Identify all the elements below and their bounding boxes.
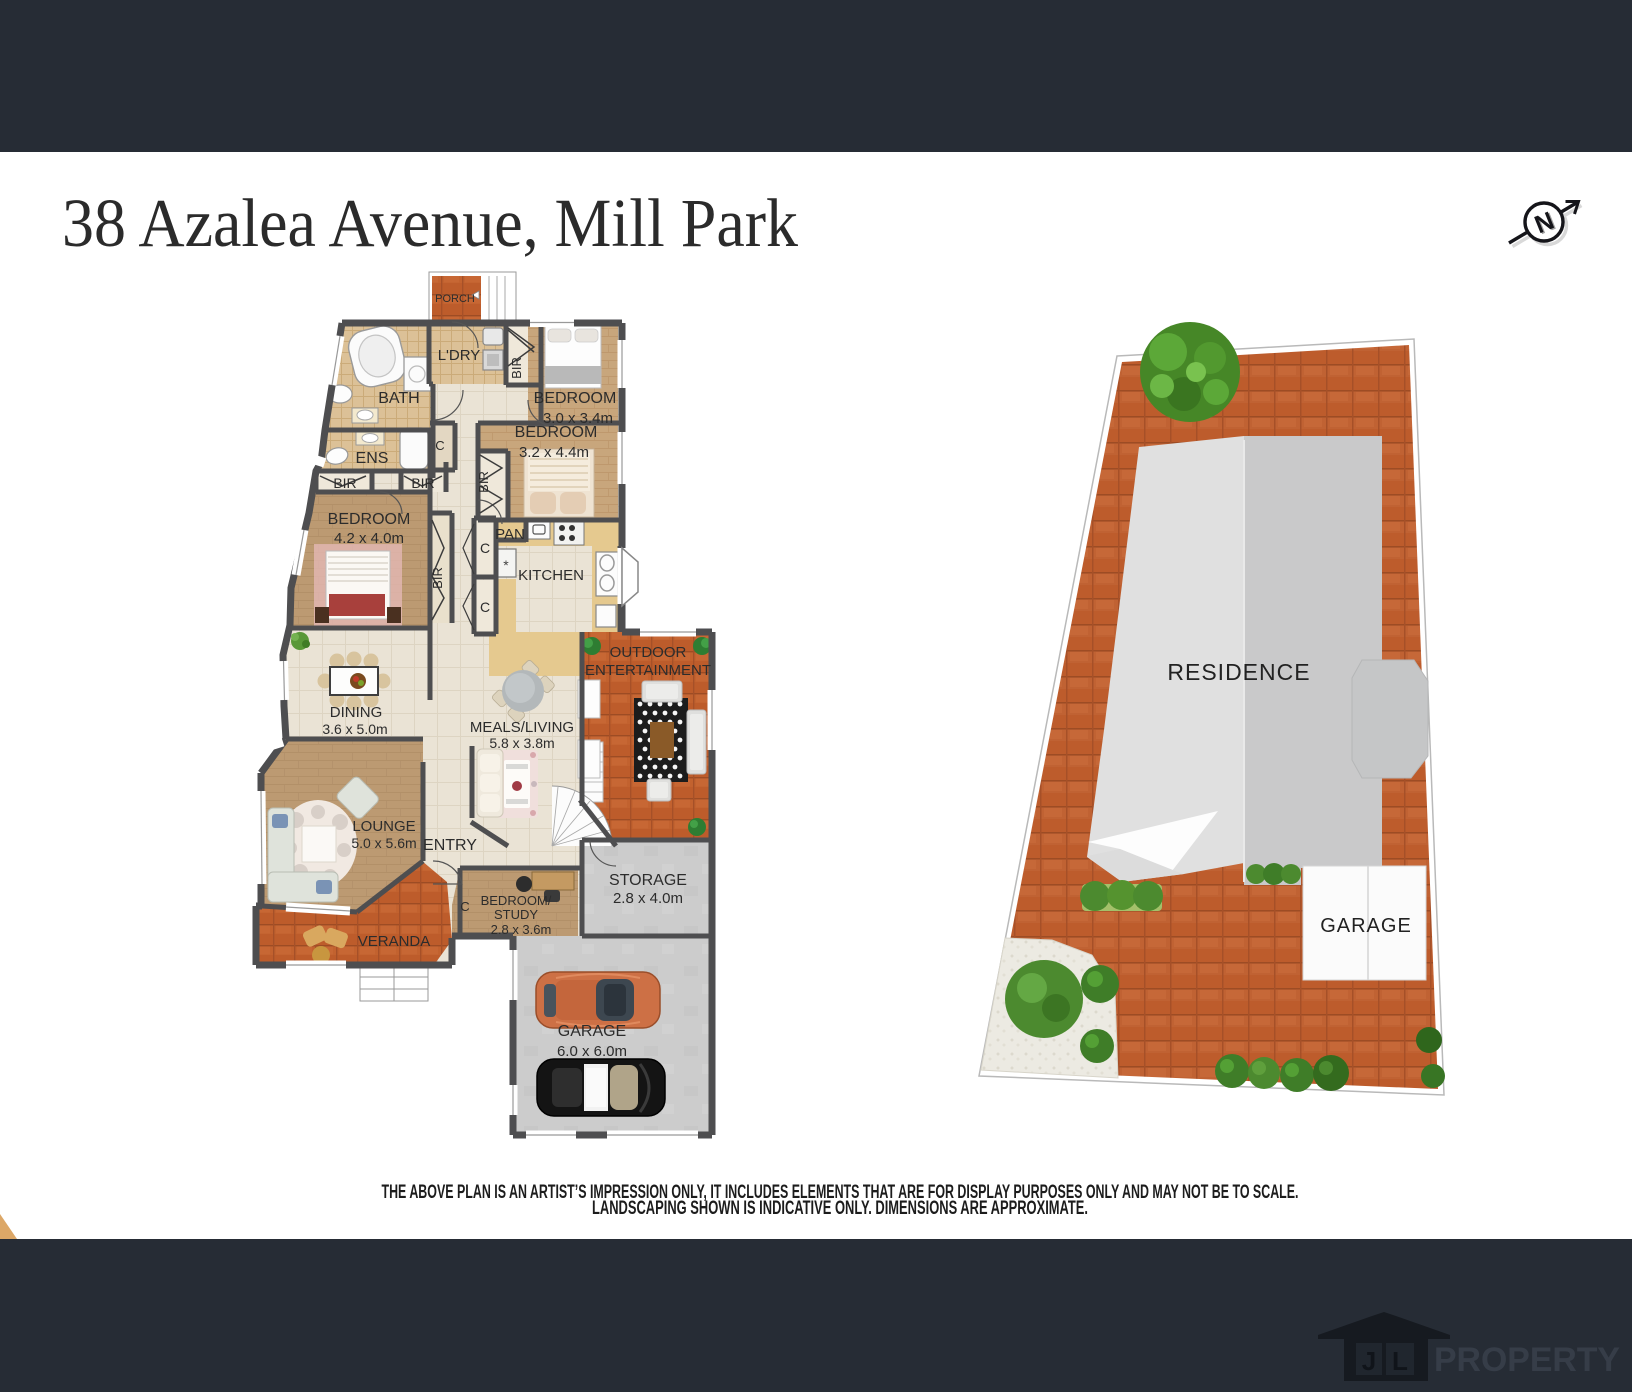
svg-text:DINING: DINING bbox=[330, 704, 383, 721]
svg-text:*: * bbox=[503, 557, 509, 573]
svg-text:2.8 x 3.6m: 2.8 x 3.6m bbox=[491, 922, 552, 937]
svg-text:PROPERTY: PROPERTY bbox=[1434, 1341, 1620, 1379]
svg-text:LOUNGE: LOUNGE bbox=[352, 818, 415, 835]
svg-text:ENTRY: ENTRY bbox=[423, 837, 477, 854]
svg-text:38 Azalea Avenue, Mill Park: 38 Azalea Avenue, Mill Park bbox=[62, 185, 798, 261]
svg-text:MEALS/LIVING: MEALS/LIVING bbox=[470, 719, 574, 736]
svg-text:BIR: BIR bbox=[476, 471, 491, 493]
svg-text:2.8 x 4.0m: 2.8 x 4.0m bbox=[613, 890, 683, 907]
svg-text:BEDROOM: BEDROOM bbox=[534, 390, 617, 407]
svg-text:3.2 x 4.4m: 3.2 x 4.4m bbox=[519, 444, 589, 461]
svg-text:3.6 x 5.0m: 3.6 x 5.0m bbox=[322, 721, 387, 737]
svg-text:J: J bbox=[1362, 1346, 1376, 1376]
svg-text:BEDROOM: BEDROOM bbox=[328, 511, 411, 528]
svg-text:C: C bbox=[480, 599, 490, 615]
svg-text:STUDY: STUDY bbox=[494, 907, 538, 922]
svg-text:GARAGE: GARAGE bbox=[558, 1023, 626, 1040]
svg-text:BIR: BIR bbox=[333, 475, 356, 491]
svg-text:L'DRY: L'DRY bbox=[438, 347, 481, 364]
svg-text:OUTDOOR: OUTDOOR bbox=[610, 644, 687, 661]
svg-text:ENS: ENS bbox=[356, 450, 389, 467]
svg-text:GARAGE: GARAGE bbox=[1320, 915, 1412, 937]
svg-text:RESIDENCE: RESIDENCE bbox=[1167, 659, 1310, 685]
svg-text:ENTERTAINMENT: ENTERTAINMENT bbox=[585, 662, 711, 679]
svg-text:6.0 x 6.0m: 6.0 x 6.0m bbox=[557, 1043, 627, 1060]
svg-text:BIR: BIR bbox=[411, 475, 434, 491]
svg-text:LANDSCAPING SHOWN IS INDICATIV: LANDSCAPING SHOWN IS INDICATIVE ONLY. DI… bbox=[592, 1197, 1088, 1219]
svg-text:5.0 x 5.6m: 5.0 x 5.6m bbox=[351, 835, 416, 851]
svg-text:L: L bbox=[1392, 1346, 1408, 1376]
svg-text:PORCH: PORCH bbox=[435, 293, 475, 305]
svg-text:BATH: BATH bbox=[378, 390, 419, 407]
svg-text:C: C bbox=[435, 438, 444, 453]
svg-text:BEDROOM: BEDROOM bbox=[515, 424, 598, 441]
svg-text:4.2 x 4.0m: 4.2 x 4.0m bbox=[334, 530, 404, 547]
svg-text:C: C bbox=[480, 540, 490, 556]
svg-text:KITCHEN: KITCHEN bbox=[518, 567, 584, 584]
svg-text:BIR: BIR bbox=[509, 357, 524, 379]
svg-text:C: C bbox=[460, 899, 469, 914]
svg-text:BIR: BIR bbox=[430, 567, 445, 589]
svg-text:BEDROOM/: BEDROOM/ bbox=[481, 893, 552, 908]
svg-text:5.8 x 3.8m: 5.8 x 3.8m bbox=[489, 735, 554, 751]
svg-text:STORAGE: STORAGE bbox=[609, 872, 687, 889]
svg-text:PAN: PAN bbox=[495, 526, 525, 543]
svg-text:VERANDA: VERANDA bbox=[358, 933, 431, 950]
